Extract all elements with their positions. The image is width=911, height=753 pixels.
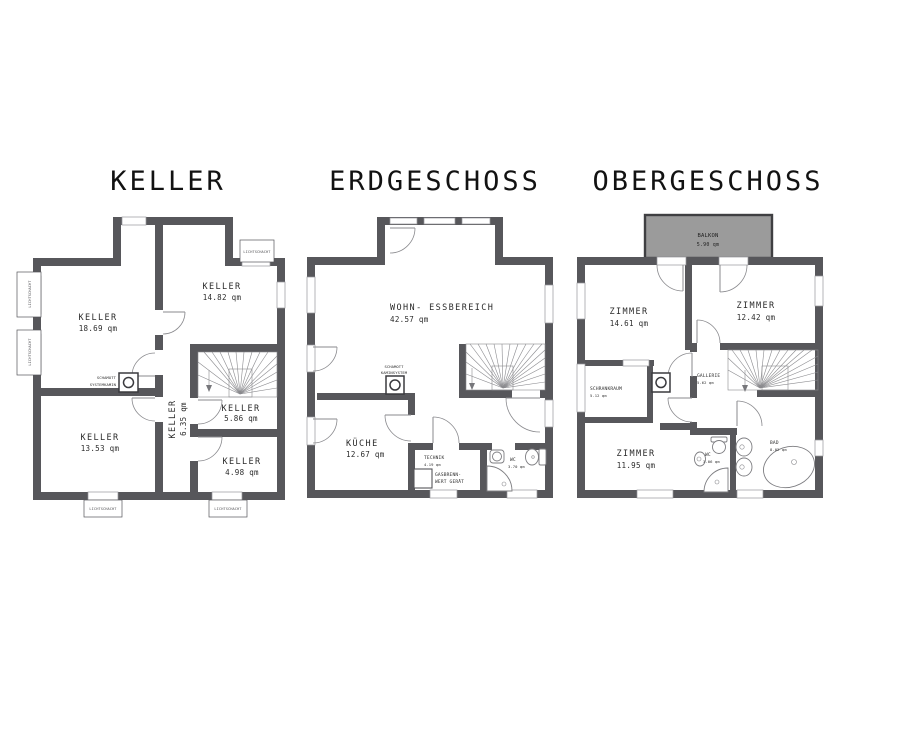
floorplan-canvas: KELLER ERDGESCHOSS OBERGESCHOSS xyxy=(0,0,911,753)
stair-direction-arrow xyxy=(469,383,475,390)
room-name: KÜCHE xyxy=(346,438,379,449)
sink-bowl xyxy=(493,452,502,461)
light-shaft-label: LICHTSCHACHT xyxy=(28,338,32,366)
room-area: 12.67 qm xyxy=(346,450,385,459)
shower xyxy=(487,466,512,491)
room-area: 14.82 qm xyxy=(203,293,242,302)
floorplan-drawing: KELLER ERDGESCHOSS OBERGESCHOSS xyxy=(0,0,911,753)
room-area: 11.95 qm xyxy=(617,461,656,470)
erdgeschoss-boiler: GASBRENN- WERT GERÄT xyxy=(414,469,464,488)
room-name: ZIMMER xyxy=(609,307,648,317)
chimney-label: KAMINSYSTEM xyxy=(381,370,408,375)
chimney-label: SYSTEMKAMIN xyxy=(90,382,117,387)
room-area: 3.70 qm xyxy=(508,464,525,469)
stair-direction-arrow xyxy=(742,385,748,392)
room-name: ZIMMER xyxy=(616,449,655,459)
erdgeschoss-stairs xyxy=(466,344,545,390)
room-area: 5.86 qm xyxy=(224,414,258,423)
balcony-area: 5.90 qm xyxy=(697,242,719,248)
obergeschoss-wc-fixtures xyxy=(695,437,729,492)
room-name: KELLER xyxy=(202,282,241,292)
room-name: BAD xyxy=(770,440,779,446)
room-name: WC xyxy=(510,457,516,463)
room-area: 14.61 qm xyxy=(610,319,649,328)
stair-direction-arrow xyxy=(206,385,212,392)
room-name: KELLER xyxy=(80,433,119,443)
room-area: 4.98 qm xyxy=(225,468,259,477)
keller-plan: LICHTSCHACHT LICHTSCHACHT LICHTSCHACHT L… xyxy=(17,217,285,517)
room-area: 4.19 qm xyxy=(424,462,441,467)
room-area: 6.35 qm xyxy=(179,402,188,436)
room-name: KELLER xyxy=(78,313,117,323)
room-name: SCHRANKRAUM xyxy=(590,386,622,392)
erdgeschoss-title: ERDGESCHOSS xyxy=(329,166,541,197)
chimney-label: SCHAMOTT xyxy=(97,375,117,380)
room-area: 8.02 qm xyxy=(770,447,787,452)
erdgeschoss-wc-fixtures xyxy=(487,449,546,491)
obergeschoss-title: OBERGESCHOSS xyxy=(592,166,823,197)
obergeschoss-chimney xyxy=(652,373,670,392)
room-area: 12.42 qm xyxy=(737,313,776,322)
room-name: WOHN- ESSBEREICH xyxy=(390,303,494,313)
keller-title: KELLER xyxy=(110,166,226,197)
room-name: KELLER xyxy=(168,399,178,438)
room-area: 5.62 qm xyxy=(697,380,714,385)
room-name: ZIMMER xyxy=(736,301,775,311)
boiler-label: WERT GERÄT xyxy=(435,478,464,485)
boiler-label: GASBRENN- xyxy=(435,472,461,478)
room-name: KELLER xyxy=(221,404,260,414)
chimney-label: SCHAMOTT xyxy=(384,364,404,369)
toilet xyxy=(713,441,726,454)
room-area: 13.53 qm xyxy=(81,444,120,453)
keller-stairs xyxy=(198,352,277,397)
obergeschoss-balcony: BALKON 5.90 qm xyxy=(645,215,772,258)
light-shaft-label: LICHTSCHACHT xyxy=(243,250,271,254)
toilet-tank xyxy=(539,449,546,465)
light-shaft-label: LICHTSCHACHT xyxy=(28,280,32,308)
obergeschoss-plan: BALKON 5.90 qm xyxy=(577,215,823,498)
room-name: TECHNIK xyxy=(424,455,444,461)
room-area: 5.12 qm xyxy=(590,393,607,398)
room-name: KELLER xyxy=(222,457,261,467)
room-area: 18.69 qm xyxy=(79,324,118,333)
bathtub xyxy=(758,440,820,494)
erdgeschoss-plan: SCHAMOTT KAMINSYSTEM GASBRENN- WERT GERÄ… xyxy=(307,217,553,498)
room-name: WC xyxy=(705,452,711,458)
room-area: 42.57 qm xyxy=(390,315,429,324)
light-shaft-label: LICHTSCHACHT xyxy=(214,507,242,511)
erdgeschoss-chimney: SCHAMOTT KAMINSYSTEM xyxy=(381,364,408,394)
room-name: GALLERIE xyxy=(697,373,720,379)
balcony-name: BALKON xyxy=(697,233,718,239)
obergeschoss-stairs xyxy=(728,350,818,392)
light-shaft-label: LICHTSCHACHT xyxy=(89,507,117,511)
room-area: 3.06 qm xyxy=(703,459,720,464)
